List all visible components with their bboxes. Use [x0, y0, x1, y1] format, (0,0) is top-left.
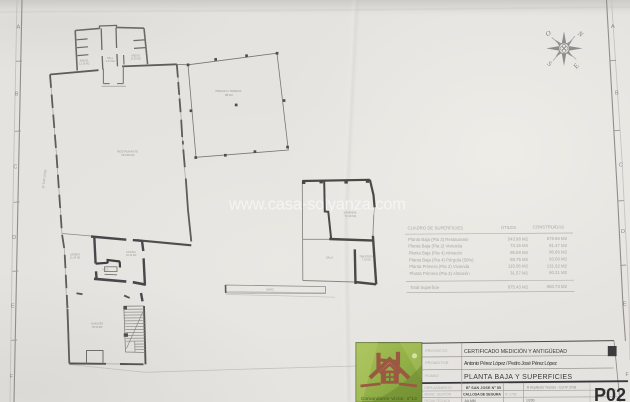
- svg-text:ÚTILES: ÚTILES: [501, 225, 516, 230]
- svg-text:Planta Baja (Pta 4) Pérgola (5: Planta Baja (Pta 4) Pérgola (50%): [409, 257, 474, 262]
- svg-text:D: D: [621, 229, 625, 235]
- svg-text:Planta Baja (Pta 2) Vivienda: Planta Baja (Pta 2) Vivienda: [408, 244, 462, 249]
- svg-text:543.98 M2: 543.98 M2: [121, 153, 135, 157]
- svg-text:Total Superficie: Total Superficie: [410, 285, 440, 290]
- svg-text:A: A: [611, 24, 615, 30]
- svg-text:C: C: [619, 163, 623, 169]
- svg-text:SALA: SALA: [326, 255, 333, 259]
- svg-text:F: F: [626, 372, 629, 378]
- svg-text:11.90 M2: 11.90 M2: [131, 57, 142, 60]
- svg-text:85.59 M2: 85.59 M2: [92, 326, 103, 329]
- svg-text:A: A: [17, 25, 21, 31]
- svg-text:PLANO: PLANO: [425, 373, 439, 378]
- svg-text:85.59 M2: 85.59 M2: [510, 250, 529, 255]
- svg-text:Bº SAN JOSE Nº 55: Bº SAN JOSE Nº 55: [466, 386, 501, 390]
- svg-text:7.10 M2: 7.10 M2: [362, 259, 372, 262]
- svg-text:73.16 M2: 73.16 M2: [344, 214, 356, 218]
- svg-text:B Arquitecto Técnico - Col Nº: B Arquitecto Técnico - Col Nº 3708: [527, 386, 576, 390]
- svg-text:D: D: [12, 235, 16, 241]
- svg-text:CUADRO DE SUPERFICIES: CUADRO DE SUPERFICIES: [408, 226, 464, 231]
- svg-text:P02: P02: [594, 385, 626, 402]
- svg-text:PROMOTOR: PROMOTOR: [425, 360, 449, 365]
- svg-text:Planta Baja (Pta 4) Almacén: Planta Baja (Pta 4) Almacén: [409, 251, 463, 256]
- svg-text:CALLOSA DE SEGURA: CALLOSA DE SEGURA: [463, 393, 501, 397]
- svg-text:Planta Primera (Pta 2) Viviend: Planta Primera (Pta 2) Vivienda: [409, 264, 470, 269]
- svg-text:16.32 M2: 16.32 M2: [126, 254, 137, 257]
- svg-text:CERTIFICADO MEDICIÓN Y ANTIGÜE: CERTIFICADO MEDICIÓN Y ANTIGÜEDAD: [464, 348, 567, 355]
- svg-text:11.34 M2: 11.34 M2: [70, 257, 81, 260]
- svg-text:Antonio Pérez López / Pedro Jo: Antonio Pérez López / Pedro José Pérez L…: [464, 361, 557, 367]
- svg-text:60.31 M2: 60.31 M2: [549, 270, 568, 275]
- svg-text:31.57 M2: 31.57 M2: [510, 270, 529, 275]
- svg-text:115.06 M2: 115.06 M2: [508, 264, 529, 269]
- svg-text:93.00 M2: 93.00 M2: [549, 257, 568, 262]
- svg-text:1/200: 1/200: [526, 399, 535, 402]
- svg-text:www.casa-solyanza.com: www.casa-solyanza.com: [228, 196, 406, 214]
- svg-text:131.62 M2: 131.62 M2: [547, 263, 568, 268]
- svg-text:B: B: [615, 91, 619, 97]
- svg-text:543.98 M2: 543.98 M2: [508, 236, 529, 241]
- svg-text:91.47 M2: 91.47 M2: [549, 243, 568, 248]
- svg-text:E: E: [623, 302, 627, 308]
- svg-text:F: F: [10, 374, 14, 380]
- svg-text:73.16 M2: 73.16 M2: [510, 243, 529, 248]
- svg-text:PLANTA BAJA Y SUPERFICIES: PLANTA BAJA Y SUPERFICIES: [464, 374, 572, 381]
- svg-text:ASEO: ASEO: [102, 268, 109, 271]
- svg-text:950.73 M2: 950.73 M2: [547, 284, 568, 289]
- svg-text:CONSTRUIDAS: CONSTRUIDAS: [533, 225, 564, 230]
- svg-text:12.16 M2: 12.16 M2: [79, 63, 90, 66]
- svg-text:Planta Baja (Pta 3) Restaurant: Planta Baja (Pta 3) Restaurante: [408, 237, 469, 242]
- svg-text:96.66 M2: 96.66 M2: [549, 250, 568, 255]
- svg-text:PROYECTO: PROYECTO: [425, 348, 447, 353]
- svg-text:E: E: [11, 304, 15, 310]
- svg-text:88.75 M2: 88.75 M2: [510, 257, 529, 262]
- svg-text:MUNIC. GESTIÓN: MUNIC. GESTIÓN: [425, 392, 452, 397]
- svg-text:88 M2: 88 M2: [225, 93, 233, 97]
- svg-text:Planta Primera (Pta 3) Almacén: Planta Primera (Pta 3) Almacén: [410, 271, 471, 276]
- svg-text:579.66 M2: 579.66 M2: [547, 236, 568, 241]
- svg-text:Nº 1798: Nº 1798: [505, 392, 517, 396]
- svg-text:EMPLAZAMIENTO: EMPLAZAMIENTO: [425, 386, 453, 390]
- svg-text:9.10 M2: 9.10 M2: [106, 60, 116, 63]
- svg-text:875.43 M2: 875.43 M2: [508, 285, 529, 290]
- svg-text:MURO: MURO: [266, 289, 273, 292]
- svg-text:FECHA TÉCNICA: FECHA TÉCNICA: [425, 398, 451, 402]
- svg-text:C: C: [13, 165, 17, 171]
- svg-text:Comandante Victor, nº13: Comandante Victor, nº13: [361, 396, 417, 402]
- svg-text:B: B: [15, 92, 19, 98]
